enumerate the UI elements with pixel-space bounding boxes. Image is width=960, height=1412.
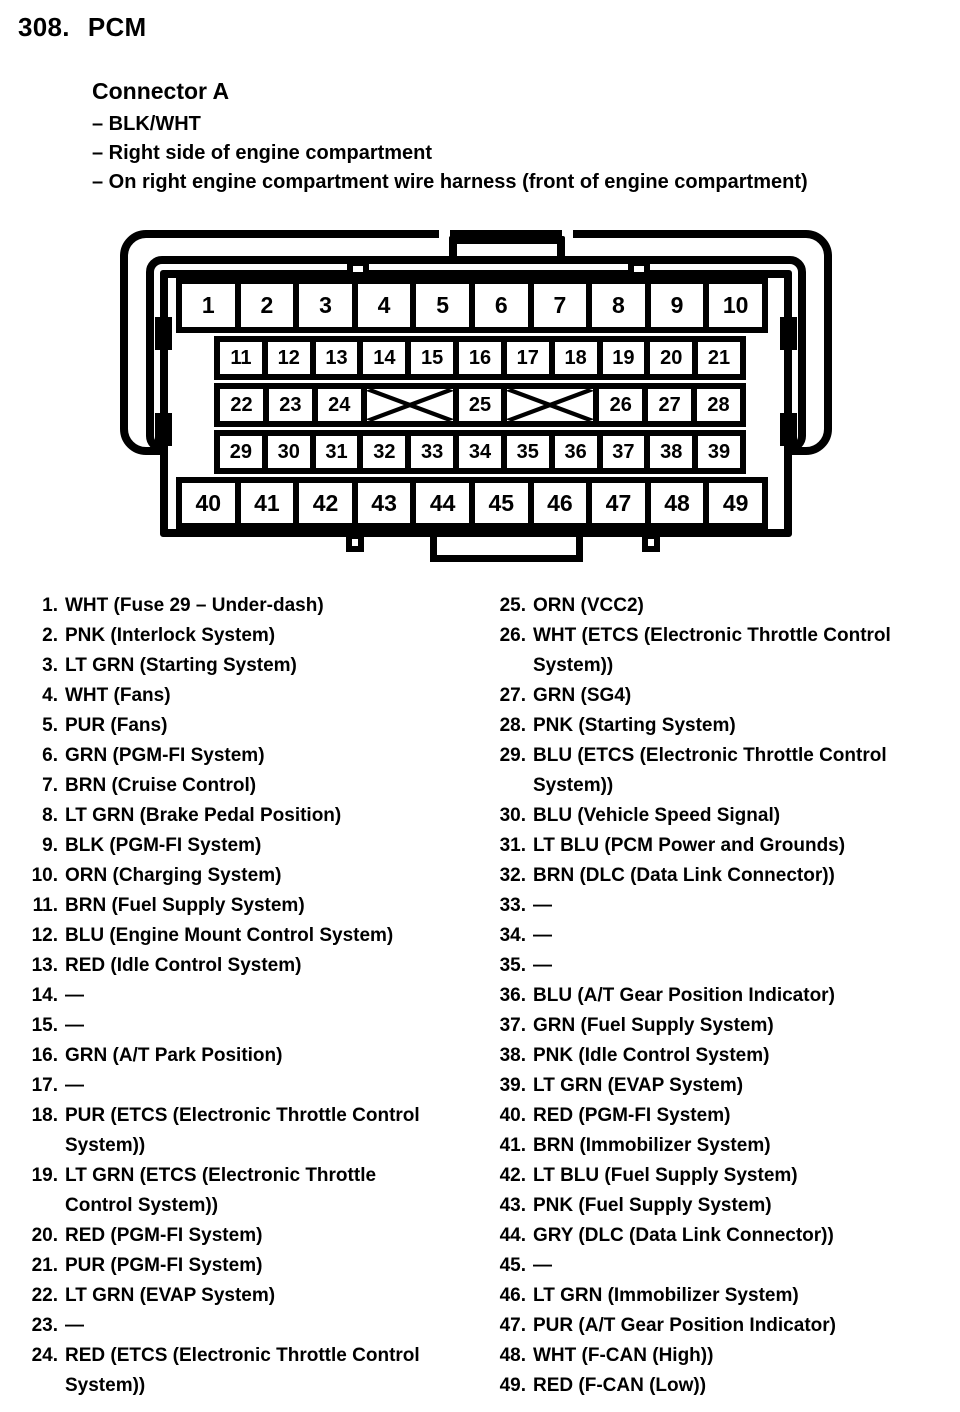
pin-cell-5: 5: [413, 281, 472, 330]
pin-description-44: 44.GRY (DLC (Data Link Connector)): [490, 1221, 956, 1251]
pin-cell-11: 11: [217, 339, 265, 377]
manual-page: 308. PCM Connector A – BLK/WHT – Right s…: [0, 0, 960, 1412]
pin-cell-8: 8: [589, 281, 648, 330]
pin-cell-36: 36: [552, 433, 600, 471]
pin-number: 14: [373, 347, 395, 370]
pin-description-1: 1.WHT (Fuse 29 – Under-dash): [22, 591, 488, 621]
pin-number: 46: [547, 490, 573, 517]
pin-description-28: 28.PNK (Starting System): [490, 711, 956, 741]
pin-number: 47: [606, 490, 632, 517]
pin-description-24: 24.RED (ETCS (Electronic Throttle Contro…: [22, 1341, 488, 1401]
pin-description-label: RED (PGM-FI System): [65, 1221, 262, 1251]
pin-cell-49: 49: [706, 480, 765, 526]
pin-description-number: 32.: [490, 861, 526, 891]
pin-description-17: 17.—: [22, 1071, 488, 1101]
pin-description-number: 7.: [22, 771, 58, 801]
pin-cell-39: 39: [695, 433, 743, 471]
pin-description-number: 11.: [22, 891, 58, 921]
pin-cell-6: 6: [472, 281, 531, 330]
pin-number: 34: [469, 441, 491, 464]
pin-description-number: 8.: [22, 801, 58, 831]
pin-description-number: 44.: [490, 1221, 526, 1251]
pin-number: 36: [564, 441, 586, 464]
pin-cell-19: 19: [600, 339, 648, 377]
pin-description-number: 21.: [22, 1251, 58, 1281]
pin-description-label: PNK (Starting System): [533, 711, 736, 741]
pin-cell-46: 46: [531, 480, 590, 526]
pin-description-49: 49.RED (F-CAN (Low)): [490, 1371, 956, 1401]
pin-number: 5: [436, 292, 449, 319]
pin-description-32: 32.BRN (DLC (Data Link Connector)): [490, 861, 956, 891]
pin-description-label: BLU (ETCS (Electronic Throttle Control S…: [533, 741, 887, 801]
pin-number: 20: [660, 347, 682, 370]
pin-description-label: —: [533, 921, 552, 951]
pin-number: 41: [254, 490, 280, 517]
pin-description-label: WHT (Fans): [65, 681, 171, 711]
pin-description-number: 18.: [22, 1101, 58, 1131]
pin-row-5: 40414243444546474849: [176, 477, 768, 529]
pin-cell-18: 18: [552, 339, 600, 377]
pin-description-label: BRN (Fuel Supply System): [65, 891, 305, 921]
pin-description-label: RED (PGM-FI System): [533, 1101, 730, 1131]
pin-cell-31: 31: [313, 433, 361, 471]
pin-cell-22: 22: [217, 386, 266, 424]
x-mark-icon: [507, 389, 593, 421]
pin-description-number: 5.: [22, 711, 58, 741]
pin-number: 43: [371, 490, 397, 517]
pin-description-label: —: [533, 891, 552, 921]
pin-cell-3: 3: [296, 281, 355, 330]
pin-cell-24: 24: [315, 386, 364, 424]
pin-description-number: 37.: [490, 1011, 526, 1041]
pin-description-label: BRN (Cruise Control): [65, 771, 256, 801]
pin-number: 31: [325, 441, 347, 464]
pin-description-label: GRN (A/T Park Position): [65, 1041, 282, 1071]
pin-description-label: BLU (Engine Mount Control System): [65, 921, 393, 951]
pin-description-number: 6.: [22, 741, 58, 771]
pin-description-number: 9.: [22, 831, 58, 861]
pin-number: 44: [430, 490, 456, 517]
pin-description-label: —: [65, 1011, 84, 1041]
pin-number: 7: [553, 292, 566, 319]
pin-number: 3: [319, 292, 332, 319]
pin-cell-28: 28: [694, 386, 743, 424]
pin-description-number: 16.: [22, 1041, 58, 1071]
pin-number: 38: [660, 441, 682, 464]
pin-description-48: 48.WHT (F-CAN (High)): [490, 1341, 956, 1371]
pin-description-label: GRN (Fuel Supply System): [533, 1011, 774, 1041]
pin-description-34: 34.—: [490, 921, 956, 951]
pin-description-2: 2.PNK (Interlock System): [22, 621, 488, 651]
pin-cell-12: 12: [265, 339, 313, 377]
pin-description-number: 49.: [490, 1371, 526, 1401]
pin-cell-15: 15: [408, 339, 456, 377]
pin-number: 6: [495, 292, 508, 319]
pin-number: 37: [612, 441, 634, 464]
pin-cell-32: 32: [360, 433, 408, 471]
side-notch-right-upper: [780, 317, 797, 350]
pin-description-label: RED (F-CAN (Low)): [533, 1371, 706, 1401]
pin-description-number: 38.: [490, 1041, 526, 1071]
pin-description-label: ORN (VCC2): [533, 591, 644, 621]
pin-description-label: PUR (PGM-FI System): [65, 1251, 262, 1281]
pin-description-10: 10.ORN (Charging System): [22, 861, 488, 891]
pin-cell-23: 23: [266, 386, 315, 424]
pin-cell-44: 44: [413, 480, 472, 526]
pin-list-right: 25.ORN (VCC2)26.WHT (ETCS (Electronic Th…: [490, 591, 956, 1401]
pin-cell-1: 1: [179, 281, 238, 330]
pin-number: 18: [564, 347, 586, 370]
pin-cell-16: 16: [456, 339, 504, 377]
pin-description-label: ORN (Charging System): [65, 861, 281, 891]
pin-description-30: 30.BLU (Vehicle Speed Signal): [490, 801, 956, 831]
pin-cell-14: 14: [360, 339, 408, 377]
pin-description-31: 31.LT BLU (PCM Power and Grounds): [490, 831, 956, 861]
pin-cell-45: 45: [472, 480, 531, 526]
pin-description-27: 27.GRN (SG4): [490, 681, 956, 711]
pin-description-number: 34.: [490, 921, 526, 951]
pin-number: 9: [671, 292, 684, 319]
pin-number: 45: [488, 490, 514, 517]
pin-number: 42: [313, 490, 339, 517]
pin-number: 48: [664, 490, 690, 517]
pin-description-number: 46.: [490, 1281, 526, 1311]
pin-description-3: 3.LT GRN (Starting System): [22, 651, 488, 681]
pin-cell-17: 17: [504, 339, 552, 377]
pin-row-3: 22232425262728: [214, 383, 746, 427]
pin-cell-7: 7: [531, 281, 590, 330]
pin-description-14: 14.—: [22, 981, 488, 1011]
pin-number: 10: [723, 292, 749, 319]
pin-cell-47: 47: [589, 480, 648, 526]
pin-description-number: 28.: [490, 711, 526, 741]
pin-description-37: 37.GRN (Fuel Supply System): [490, 1011, 956, 1041]
pin-cell-40: 40: [179, 480, 238, 526]
pin-description-label: PUR (A/T Gear Position Indicator): [533, 1311, 836, 1341]
x-mark-icon: [367, 389, 453, 421]
pin-cell-30: 30: [265, 433, 313, 471]
pin-description-number: 10.: [22, 861, 58, 891]
page-title: 308. PCM: [18, 12, 147, 43]
pin-description-label: RED (ETCS (Electronic Throttle Control S…: [65, 1341, 420, 1401]
pin-description-36: 36.BLU (A/T Gear Position Indicator): [490, 981, 956, 1011]
pin-cell-42: 42: [296, 480, 355, 526]
pin-description-45: 45.—: [490, 1251, 956, 1281]
side-notch-left-upper: [155, 317, 172, 350]
pin-description-number: 2.: [22, 621, 58, 651]
pin-description-26: 26.WHT (ETCS (Electronic Throttle Contro…: [490, 621, 956, 681]
pin-description-4: 4.WHT (Fans): [22, 681, 488, 711]
pin-description-number: 36.: [490, 981, 526, 1011]
pin-description-number: 26.: [490, 621, 526, 651]
pin-description-label: —: [533, 951, 552, 981]
pin-number: 15: [421, 347, 443, 370]
pin-description-16: 16.GRN (A/T Park Position): [22, 1041, 488, 1071]
pin-description-15: 15.—: [22, 1011, 488, 1041]
pin-description-label: PUR (Fans): [65, 711, 167, 741]
pin-description-label: BLU (A/T Gear Position Indicator): [533, 981, 835, 1011]
pin-cell-27: 27: [645, 386, 694, 424]
pin-number: 12: [278, 347, 300, 370]
pin-description-label: LT GRN (Immobilizer System): [533, 1281, 799, 1311]
pin-description-42: 42.LT BLU (Fuel Supply System): [490, 1161, 956, 1191]
pin-cell-41: 41: [238, 480, 297, 526]
pin-cell-29: 29: [217, 433, 265, 471]
pin-number: 25: [469, 394, 491, 417]
pin-number: 11: [230, 347, 251, 370]
pin-description-number: 25.: [490, 591, 526, 621]
pin-number: 28: [707, 394, 729, 417]
section-number: 308.: [18, 12, 70, 43]
pin-description-label: PNK (Fuel Supply System): [533, 1191, 772, 1221]
blank-crossed-cell: [364, 386, 456, 424]
pin-number: 30: [278, 441, 300, 464]
pin-cell-33: 33: [408, 433, 456, 471]
pin-description-number: 43.: [490, 1191, 526, 1221]
pin-description-label: BLU (Vehicle Speed Signal): [533, 801, 780, 831]
pin-description-label: WHT (ETCS (Electronic Throttle Control S…: [533, 621, 891, 681]
pin-description-number: 27.: [490, 681, 526, 711]
pin-number: 1: [202, 292, 215, 319]
pin-description-number: 3.: [22, 651, 58, 681]
pin-description-39: 39.LT GRN (EVAP System): [490, 1071, 956, 1101]
pin-description-number: 4.: [22, 681, 58, 711]
blank-crossed-cell: [504, 386, 596, 424]
pin-row-1: 12345678910: [176, 278, 768, 333]
side-notch-left-lower: [155, 413, 172, 446]
pin-description-21: 21.PUR (PGM-FI System): [22, 1251, 488, 1281]
pin-number: 22: [230, 394, 252, 417]
bottom-guide-tab-left: [346, 533, 364, 552]
pin-number: 2: [260, 292, 273, 319]
pin-description-number: 15.: [22, 1011, 58, 1041]
pin-number: 26: [610, 394, 632, 417]
pin-number: 40: [196, 490, 222, 517]
pin-description-number: 20.: [22, 1221, 58, 1251]
pin-description-label: BLK (PGM-FI System): [65, 831, 261, 861]
pin-description-number: 31.: [490, 831, 526, 861]
pin-list-left: 1.WHT (Fuse 29 – Under-dash)2.PNK (Inter…: [22, 591, 488, 1401]
pin-description-label: BRN (Immobilizer System): [533, 1131, 771, 1161]
pin-description-number: 22.: [22, 1281, 58, 1311]
pin-description-number: 45.: [490, 1251, 526, 1281]
pin-description-number: 24.: [22, 1341, 58, 1371]
pin-number: 32: [373, 441, 395, 464]
pin-number: 33: [421, 441, 443, 464]
pin-description-number: 35.: [490, 951, 526, 981]
pin-description-label: GRN (PGM-FI System): [65, 741, 265, 771]
section-title: PCM: [88, 12, 147, 43]
pin-number: 19: [612, 347, 634, 370]
pin-description-33: 33.—: [490, 891, 956, 921]
pin-description-number: 19.: [22, 1161, 58, 1191]
pin-description-23: 23.—: [22, 1311, 488, 1341]
pin-row-2: 1112131415161718192021: [214, 336, 746, 380]
pin-description-43: 43.PNK (Fuel Supply System): [490, 1191, 956, 1221]
pin-number: 27: [658, 394, 680, 417]
pin-cell-10: 10: [706, 281, 765, 330]
pin-number: 17: [517, 347, 539, 370]
pin-cell-9: 9: [648, 281, 707, 330]
pin-description-number: 23.: [22, 1311, 58, 1341]
pin-description-number: 41.: [490, 1131, 526, 1161]
pin-description-25: 25.ORN (VCC2): [490, 591, 956, 621]
pin-description-number: 33.: [490, 891, 526, 921]
pin-description-label: —: [65, 1311, 84, 1341]
pin-number: 13: [325, 347, 347, 370]
pin-number: 8: [612, 292, 625, 319]
pin-cell-38: 38: [647, 433, 695, 471]
pin-cell-35: 35: [504, 433, 552, 471]
pin-cell-4: 4: [355, 281, 414, 330]
pin-description-7: 7.BRN (Cruise Control): [22, 771, 488, 801]
pin-description-label: RED (Idle Control System): [65, 951, 301, 981]
pin-description-label: PNK (Idle Control System): [533, 1041, 769, 1071]
bottom-guide-tab-right: [642, 533, 660, 552]
pin-description-number: 48.: [490, 1341, 526, 1371]
pin-number: 4: [378, 292, 391, 319]
pin-number: 35: [517, 441, 539, 464]
pin-description-label: PNK (Interlock System): [65, 621, 275, 651]
pin-description-label: —: [65, 981, 84, 1011]
pin-description-label: LT GRN (EVAP System): [533, 1071, 743, 1101]
pin-description-number: 29.: [490, 741, 526, 771]
connector-heading: Connector A: [92, 78, 229, 105]
pin-cell-37: 37: [600, 433, 648, 471]
pin-description-label: GRY (DLC (Data Link Connector)): [533, 1221, 834, 1251]
pin-description-label: LT BLU (PCM Power and Grounds): [533, 831, 845, 861]
pin-number: 49: [723, 490, 749, 517]
pin-number: 39: [708, 441, 730, 464]
pin-description-18: 18.PUR (ETCS (Electronic Throttle Contro…: [22, 1101, 488, 1161]
pin-description-41: 41.BRN (Immobilizer System): [490, 1131, 956, 1161]
pin-cell-21: 21: [695, 339, 743, 377]
top-guide-tab-left: [347, 260, 369, 278]
pin-cell-20: 20: [647, 339, 695, 377]
pin-description-label: WHT (F-CAN (High)): [533, 1341, 713, 1371]
pin-cell-48: 48: [648, 480, 707, 526]
pin-description-label: PUR (ETCS (Electronic Throttle Control S…: [65, 1101, 420, 1161]
pin-number: 21: [708, 347, 730, 370]
pin-cell-43: 43: [355, 480, 414, 526]
pin-description-number: 39.: [490, 1071, 526, 1101]
pin-description-19: 19.LT GRN (ETCS (Electronic Throttle Con…: [22, 1161, 488, 1221]
pin-description-label: LT GRN (Brake Pedal Position): [65, 801, 341, 831]
note-location: – Right side of engine compartment: [92, 139, 808, 168]
pin-description-number: 1.: [22, 591, 58, 621]
pin-description-13: 13.RED (Idle Control System): [22, 951, 488, 981]
pin-description-46: 46.LT GRN (Immobilizer System): [490, 1281, 956, 1311]
pin-cell-34: 34: [456, 433, 504, 471]
pin-description-label: BRN (DLC (Data Link Connector)): [533, 861, 835, 891]
pin-description-40: 40.RED (PGM-FI System): [490, 1101, 956, 1131]
pin-description-label: —: [533, 1251, 552, 1281]
pin-number: 29: [230, 441, 252, 464]
pin-description-11: 11.BRN (Fuel Supply System): [22, 891, 488, 921]
pin-description-number: 40.: [490, 1101, 526, 1131]
pin-description-47: 47.PUR (A/T Gear Position Indicator): [490, 1311, 956, 1341]
pin-description-22: 22.LT GRN (EVAP System): [22, 1281, 488, 1311]
pin-description-38: 38.PNK (Idle Control System): [490, 1041, 956, 1071]
pin-description-label: LT BLU (Fuel Supply System): [533, 1161, 798, 1191]
bottom-center-tab: [430, 537, 583, 562]
pin-description-29: 29.BLU (ETCS (Electronic Throttle Contro…: [490, 741, 956, 801]
pin-cell-25: 25: [456, 386, 505, 424]
pin-cell-13: 13: [313, 339, 361, 377]
pin-description-number: 17.: [22, 1071, 58, 1101]
pin-description-8: 8.LT GRN (Brake Pedal Position): [22, 801, 488, 831]
pin-description-label: GRN (SG4): [533, 681, 631, 711]
side-notch-right-lower: [780, 413, 797, 446]
pin-description-number: 13.: [22, 951, 58, 981]
pin-description-number: 12.: [22, 921, 58, 951]
pin-description-number: 47.: [490, 1311, 526, 1341]
pin-description-35: 35.—: [490, 951, 956, 981]
note-harness: – On right engine compartment wire harne…: [92, 168, 808, 197]
pin-cell-26: 26: [596, 386, 645, 424]
pin-number: 23: [279, 394, 301, 417]
pin-description-label: LT GRN (EVAP System): [65, 1281, 275, 1311]
pin-description-label: LT GRN (ETCS (Electronic Throttle Contro…: [65, 1161, 376, 1221]
pin-cell-2: 2: [238, 281, 297, 330]
pin-description-label: WHT (Fuse 29 – Under-dash): [65, 591, 324, 621]
pin-description-number: 14.: [22, 981, 58, 1011]
pin-description-20: 20.RED (PGM-FI System): [22, 1221, 488, 1251]
pin-description-12: 12.BLU (Engine Mount Control System): [22, 921, 488, 951]
pin-description-label: —: [65, 1071, 84, 1101]
pin-description-number: 42.: [490, 1161, 526, 1191]
top-guide-tab-right: [628, 260, 650, 278]
pin-description-5: 5.PUR (Fans): [22, 711, 488, 741]
pin-number: 24: [328, 394, 350, 417]
pin-row-4: 2930313233343536373839: [214, 430, 746, 474]
pin-description-number: 30.: [490, 801, 526, 831]
pin-description-9: 9.BLK (PGM-FI System): [22, 831, 488, 861]
pin-description-label: LT GRN (Starting System): [65, 651, 297, 681]
note-wire-color: – BLK/WHT: [92, 110, 808, 139]
connector-notes: – BLK/WHT – Right side of engine compart…: [92, 110, 808, 197]
pin-number: 16: [469, 347, 491, 370]
pin-description-6: 6.GRN (PGM-FI System): [22, 741, 488, 771]
